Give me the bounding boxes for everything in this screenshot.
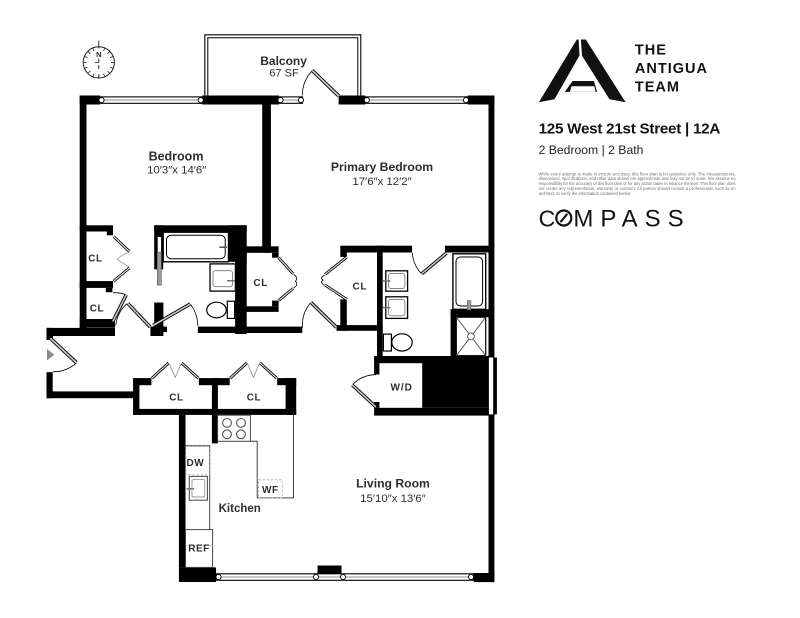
svg-text:MPASS: MPASS (573, 206, 690, 233)
svg-text:TEAM: TEAM (635, 79, 680, 95)
svg-text:17′6″x 12′2″: 17′6″x 12′2″ (352, 176, 411, 188)
svg-text:10′3″x 14′6″: 10′3″x 14′6″ (147, 165, 206, 177)
svg-text:15′10″x 13′6″: 15′10″x 13′6″ (360, 493, 426, 505)
svg-text:N: N (96, 50, 101, 59)
svg-text:Bedroom: Bedroom (149, 149, 204, 163)
svg-text:CL: CL (253, 278, 268, 289)
svg-text:DW: DW (187, 458, 205, 469)
svg-text:CL: CL (88, 254, 103, 265)
svg-text:67 SF: 67 SF (269, 68, 299, 80)
svg-text:THE: THE (635, 43, 667, 59)
svg-text:Balcony: Balcony (260, 54, 307, 68)
svg-text:architect, to verify the infor: architect, to verify the information con… (539, 191, 632, 196)
svg-text:Primary Bedroom: Primary Bedroom (331, 160, 433, 174)
svg-text:CL: CL (247, 393, 262, 404)
svg-text:W/D: W/D (390, 382, 412, 393)
svg-text:WF: WF (262, 485, 279, 496)
svg-text:Living Room: Living Room (356, 477, 430, 491)
svg-text:CL: CL (353, 281, 368, 292)
svg-text:REF: REF (188, 544, 210, 555)
svg-text:2 Bedroom | 2 Bath: 2 Bedroom | 2 Bath (539, 143, 644, 157)
svg-text:Kitchen: Kitchen (219, 503, 261, 515)
svg-text:ANTIGUA: ANTIGUA (635, 61, 708, 77)
svg-text:CL: CL (169, 393, 184, 404)
svg-text:C: C (539, 206, 556, 232)
svg-text:CL: CL (90, 304, 105, 315)
svg-text:125 West 21st Street | 12A: 125 West 21st Street | 12A (539, 120, 721, 137)
